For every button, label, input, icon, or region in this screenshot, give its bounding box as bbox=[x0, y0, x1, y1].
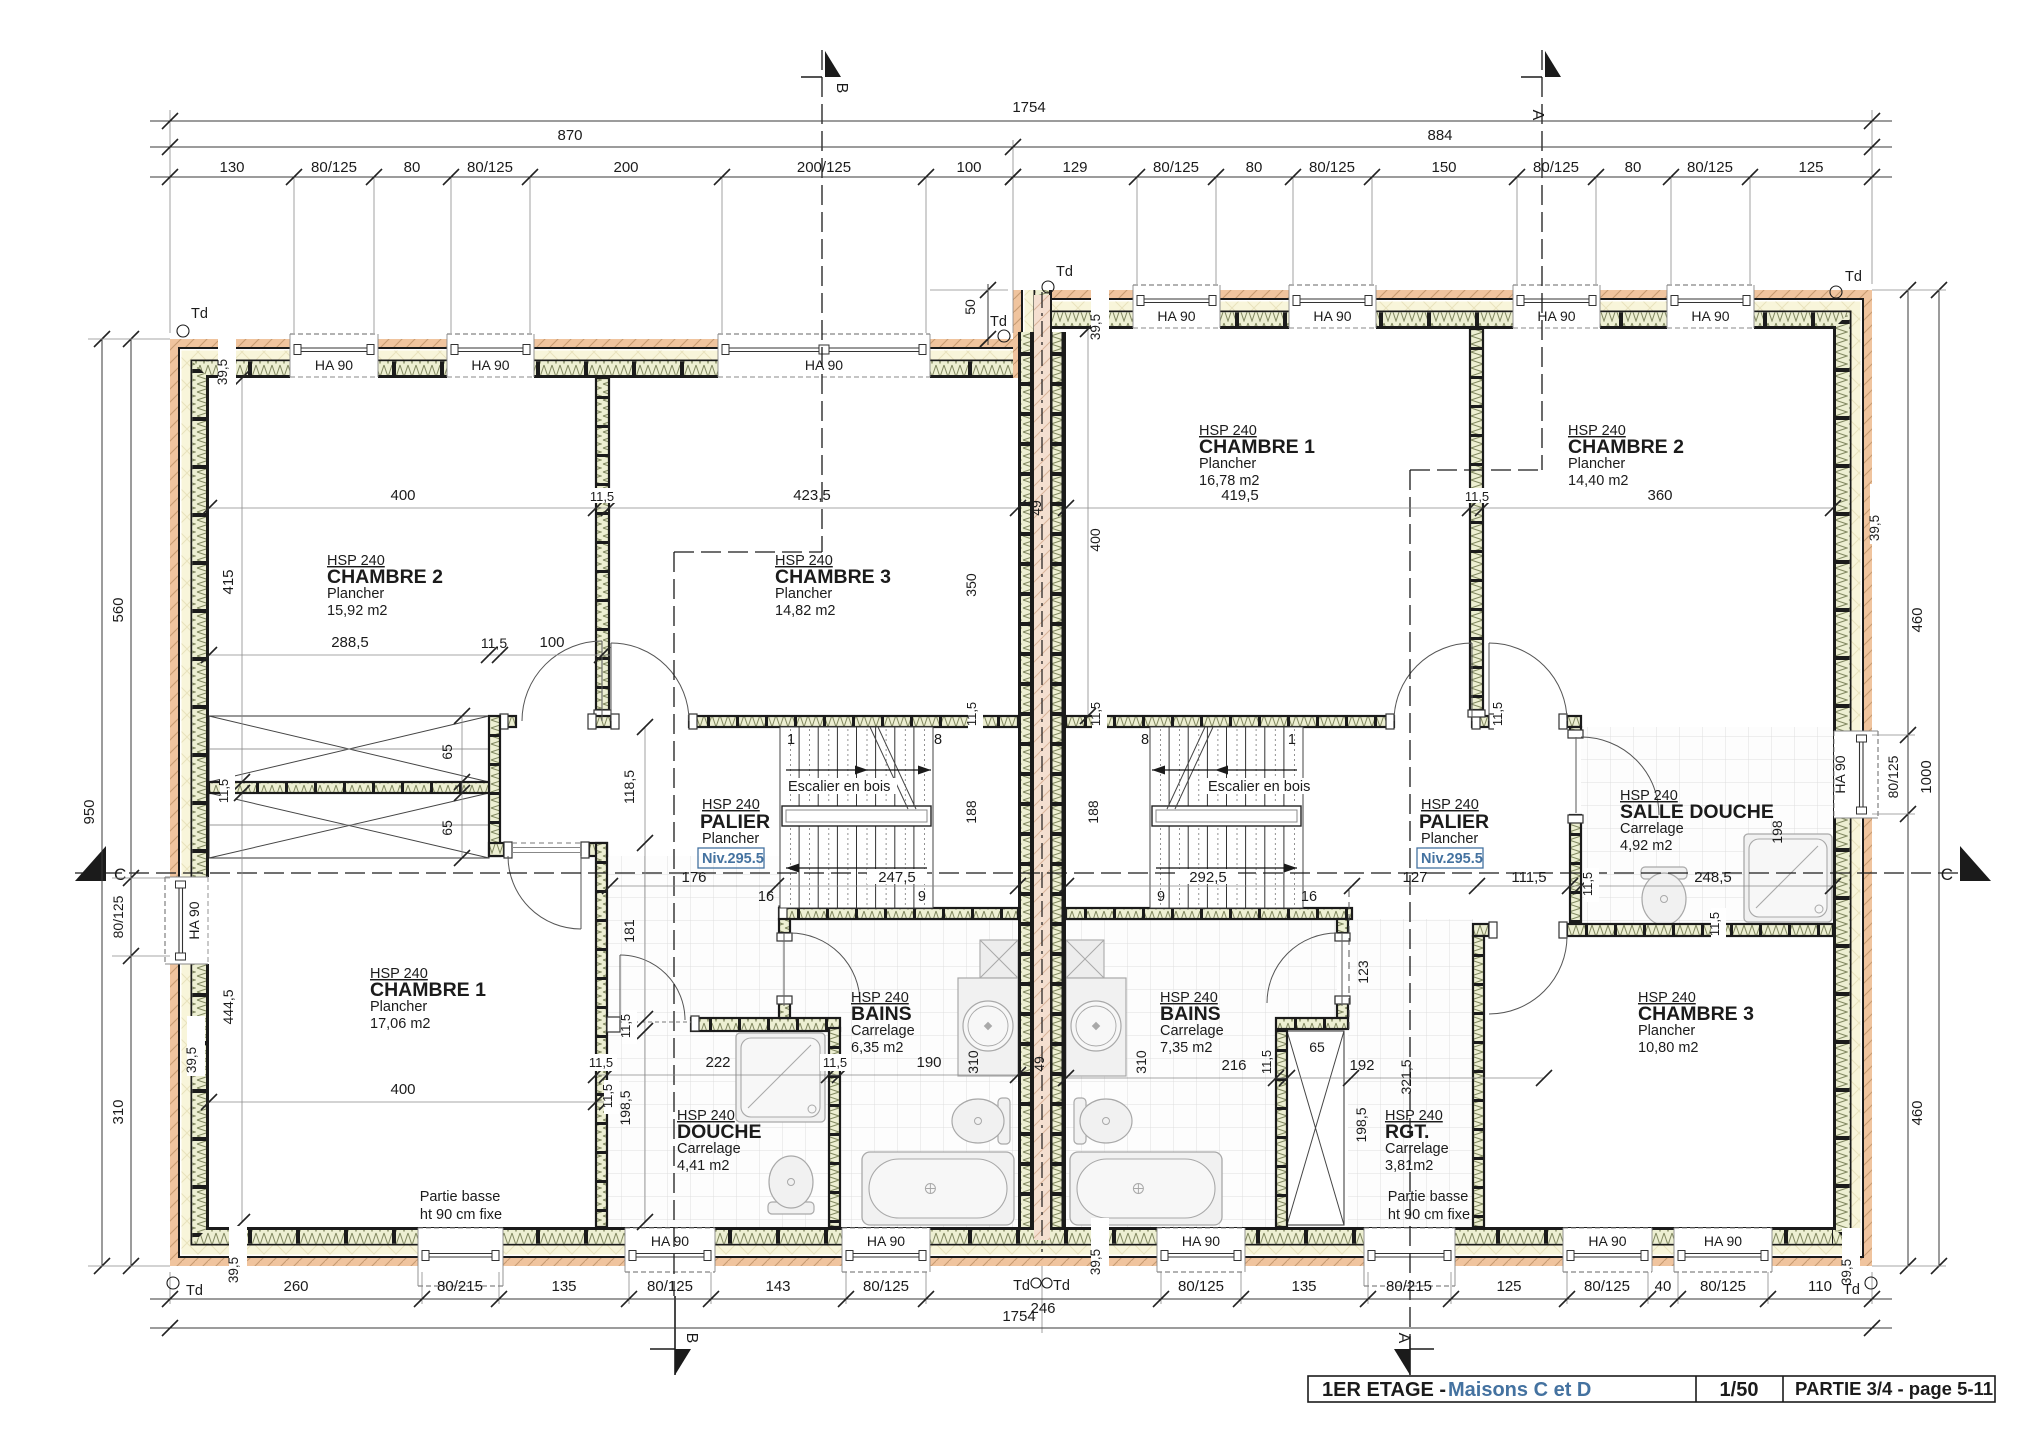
svg-text:Partie basse: Partie basse bbox=[1388, 1189, 1469, 1205]
svg-text:80: 80 bbox=[1625, 159, 1642, 176]
svg-text:Niv.295.5: Niv.295.5 bbox=[1421, 851, 1483, 867]
svg-text:4,41 m2: 4,41 m2 bbox=[677, 1158, 729, 1174]
svg-text:130: 130 bbox=[219, 159, 244, 176]
svg-text:11,5: 11,5 bbox=[964, 702, 979, 726]
svg-text:1: 1 bbox=[787, 732, 795, 748]
svg-text:BAINS: BAINS bbox=[851, 1003, 912, 1025]
svg-text:39,5: 39,5 bbox=[226, 1257, 241, 1283]
svg-text:360: 360 bbox=[1647, 487, 1672, 504]
svg-text:Carrelage: Carrelage bbox=[1385, 1141, 1449, 1157]
svg-text:310: 310 bbox=[965, 1050, 981, 1074]
svg-text:16: 16 bbox=[1301, 889, 1317, 905]
svg-text:80/125: 80/125 bbox=[1584, 1278, 1630, 1295]
svg-text:Td: Td bbox=[1845, 269, 1862, 285]
svg-text:111,5: 111,5 bbox=[1511, 869, 1546, 886]
svg-text:HA 90: HA 90 bbox=[1704, 1233, 1742, 1249]
svg-text:419,5: 419,5 bbox=[1221, 487, 1259, 504]
svg-text:65: 65 bbox=[1309, 1039, 1325, 1055]
svg-text:39,5: 39,5 bbox=[215, 359, 230, 385]
svg-text:1754: 1754 bbox=[1012, 99, 1045, 116]
svg-text:49: 49 bbox=[1031, 1056, 1047, 1072]
svg-text:80/125: 80/125 bbox=[1700, 1278, 1746, 1295]
svg-text:423,5: 423,5 bbox=[793, 487, 831, 504]
svg-text:HA 90: HA 90 bbox=[1313, 308, 1351, 324]
svg-text:6,35 m2: 6,35 m2 bbox=[851, 1040, 903, 1056]
svg-text:400: 400 bbox=[390, 487, 415, 504]
svg-text:11,5: 11,5 bbox=[216, 779, 231, 803]
svg-text:143: 143 bbox=[765, 1278, 790, 1295]
svg-text:11,5: 11,5 bbox=[823, 1055, 847, 1070]
svg-text:CHAMBRE 3: CHAMBRE 3 bbox=[1638, 1003, 1754, 1025]
svg-text:A: A bbox=[1395, 1333, 1412, 1344]
svg-text:11,5: 11,5 bbox=[589, 1055, 613, 1070]
svg-text:80/215: 80/215 bbox=[1386, 1278, 1432, 1295]
svg-text:HA 90: HA 90 bbox=[1832, 755, 1848, 793]
svg-text:118,5: 118,5 bbox=[621, 770, 637, 804]
svg-text:11,5: 11,5 bbox=[590, 489, 614, 504]
svg-text:870: 870 bbox=[557, 127, 582, 144]
svg-text:400: 400 bbox=[1087, 528, 1103, 552]
svg-text:1: 1 bbox=[1288, 732, 1296, 748]
svg-text:CHAMBRE 3: CHAMBRE 3 bbox=[775, 566, 891, 588]
svg-text:4,92 m2: 4,92 m2 bbox=[1620, 838, 1672, 854]
svg-text:SALLE DOUCHE: SALLE DOUCHE bbox=[1620, 801, 1774, 823]
svg-text:80/125: 80/125 bbox=[1885, 755, 1901, 798]
svg-text:176: 176 bbox=[681, 869, 706, 886]
svg-text:129: 129 bbox=[1062, 159, 1087, 176]
svg-text:198,5: 198,5 bbox=[1353, 1107, 1369, 1142]
svg-text:125: 125 bbox=[1496, 1278, 1521, 1295]
svg-text:321,5: 321,5 bbox=[1398, 1059, 1414, 1094]
svg-text:16,78 m2: 16,78 m2 bbox=[1199, 473, 1259, 489]
svg-text:1ER ETAGE -: 1ER ETAGE - bbox=[1322, 1379, 1446, 1401]
svg-text:200/125: 200/125 bbox=[797, 159, 851, 176]
svg-text:Carrelage: Carrelage bbox=[1620, 821, 1684, 837]
svg-text:Plancher: Plancher bbox=[1421, 831, 1478, 847]
svg-text:CHAMBRE 2: CHAMBRE 2 bbox=[1568, 436, 1684, 458]
svg-text:80/215: 80/215 bbox=[437, 1278, 483, 1295]
svg-text:216: 216 bbox=[1221, 1057, 1246, 1074]
svg-text:ht 90 cm fixe: ht 90 cm fixe bbox=[420, 1207, 502, 1223]
svg-text:11,5: 11,5 bbox=[600, 1084, 615, 1108]
svg-text:80: 80 bbox=[404, 159, 421, 176]
svg-text:8: 8 bbox=[934, 732, 942, 748]
svg-text:9: 9 bbox=[918, 889, 926, 905]
svg-text:49: 49 bbox=[1028, 500, 1044, 516]
svg-text:110: 110 bbox=[1808, 1278, 1832, 1295]
svg-text:65: 65 bbox=[439, 744, 455, 760]
svg-text:PARTIE 3/4 - page 5-11: PARTIE 3/4 - page 5-11 bbox=[1795, 1378, 1993, 1399]
svg-text:135: 135 bbox=[551, 1278, 576, 1295]
svg-text:460: 460 bbox=[1909, 1100, 1926, 1125]
svg-text:125: 125 bbox=[1798, 159, 1823, 176]
svg-text:65: 65 bbox=[439, 820, 455, 836]
svg-text:Td: Td bbox=[1013, 1278, 1030, 1294]
svg-text:11,5: 11,5 bbox=[1707, 912, 1722, 936]
svg-text:Td: Td bbox=[990, 314, 1007, 330]
svg-text:DOUCHE: DOUCHE bbox=[677, 1121, 762, 1143]
svg-text:11,5: 11,5 bbox=[618, 1014, 633, 1038]
svg-text:884: 884 bbox=[1427, 127, 1452, 144]
svg-text:PALIER: PALIER bbox=[1419, 811, 1489, 833]
svg-text:ht 90 cm fixe: ht 90 cm fixe bbox=[1388, 1207, 1470, 1223]
svg-text:CHAMBRE 2: CHAMBRE 2 bbox=[327, 566, 443, 588]
svg-text:310: 310 bbox=[110, 1099, 127, 1124]
svg-text:1000: 1000 bbox=[1918, 760, 1935, 793]
svg-text:Td: Td bbox=[1053, 1278, 1070, 1294]
svg-text:Td: Td bbox=[186, 1283, 203, 1299]
svg-text:248,5: 248,5 bbox=[1694, 869, 1732, 886]
svg-text:Maisons C et D: Maisons C et D bbox=[1448, 1379, 1591, 1401]
svg-text:CHAMBRE 1: CHAMBRE 1 bbox=[370, 979, 486, 1001]
svg-text:14,82 m2: 14,82 m2 bbox=[775, 603, 835, 619]
svg-text:Td: Td bbox=[191, 306, 208, 322]
svg-text:Carrelage: Carrelage bbox=[677, 1141, 741, 1157]
svg-text:135: 135 bbox=[1291, 1278, 1316, 1295]
svg-text:A: A bbox=[1529, 110, 1546, 121]
svg-text:10,80 m2: 10,80 m2 bbox=[1638, 1040, 1698, 1056]
svg-text:80/125: 80/125 bbox=[1153, 159, 1199, 176]
svg-text:444,5: 444,5 bbox=[220, 989, 236, 1024]
svg-text:310: 310 bbox=[1133, 1050, 1149, 1074]
svg-text:39,5: 39,5 bbox=[1088, 314, 1103, 340]
svg-text:1/50: 1/50 bbox=[1720, 1379, 1759, 1401]
svg-text:HA 90: HA 90 bbox=[1537, 308, 1575, 324]
svg-text:14,40 m2: 14,40 m2 bbox=[1568, 473, 1628, 489]
svg-text:C: C bbox=[114, 865, 126, 884]
svg-text:Plancher: Plancher bbox=[702, 831, 759, 847]
svg-text:192: 192 bbox=[1349, 1057, 1374, 1074]
svg-text:39,5: 39,5 bbox=[1867, 515, 1882, 541]
svg-text:127: 127 bbox=[1402, 869, 1427, 886]
svg-text:Partie basse: Partie basse bbox=[420, 1189, 501, 1205]
svg-text:415: 415 bbox=[220, 569, 237, 594]
svg-text:460: 460 bbox=[1909, 607, 1926, 632]
svg-text:11,5: 11,5 bbox=[1490, 702, 1505, 726]
svg-text:247,5: 247,5 bbox=[878, 869, 916, 886]
svg-text:RGT.: RGT. bbox=[1385, 1121, 1429, 1143]
svg-text:11,5: 11,5 bbox=[481, 635, 507, 651]
svg-text:260: 260 bbox=[283, 1278, 308, 1295]
svg-text:Plancher: Plancher bbox=[1199, 456, 1256, 472]
svg-text:1754: 1754 bbox=[1002, 1308, 1035, 1325]
svg-text:B: B bbox=[683, 1333, 700, 1344]
svg-text:Carrelage: Carrelage bbox=[1160, 1023, 1224, 1039]
svg-text:80/125: 80/125 bbox=[1687, 159, 1733, 176]
svg-text:BAINS: BAINS bbox=[1160, 1003, 1221, 1025]
svg-text:200: 200 bbox=[613, 159, 638, 176]
svg-text:80/125: 80/125 bbox=[1533, 159, 1579, 176]
svg-text:8: 8 bbox=[1141, 732, 1149, 748]
svg-text:HA 90: HA 90 bbox=[471, 357, 509, 373]
svg-text:HA 90: HA 90 bbox=[651, 1233, 689, 1249]
svg-text:198,5: 198,5 bbox=[617, 1090, 633, 1125]
svg-text:190: 190 bbox=[916, 1054, 941, 1071]
svg-text:80/125: 80/125 bbox=[863, 1278, 909, 1295]
svg-text:HA 90: HA 90 bbox=[1157, 308, 1195, 324]
svg-text:Plancher: Plancher bbox=[1638, 1023, 1695, 1039]
svg-text:11,5: 11,5 bbox=[1259, 1050, 1274, 1074]
svg-text:80/125: 80/125 bbox=[110, 895, 126, 938]
svg-text:39,5: 39,5 bbox=[184, 1047, 199, 1073]
svg-text:80/125: 80/125 bbox=[1309, 159, 1355, 176]
svg-text:400: 400 bbox=[390, 1081, 415, 1098]
svg-text:181: 181 bbox=[621, 919, 637, 943]
svg-text:292,5: 292,5 bbox=[1189, 869, 1227, 886]
svg-text:123: 123 bbox=[1355, 960, 1371, 984]
svg-text:198: 198 bbox=[1769, 820, 1785, 844]
svg-text:11,5: 11,5 bbox=[1465, 489, 1489, 504]
svg-text:80/125: 80/125 bbox=[467, 159, 513, 176]
svg-text:Td: Td bbox=[1843, 1282, 1860, 1298]
svg-text:100: 100 bbox=[956, 159, 981, 176]
svg-text:350: 350 bbox=[963, 573, 979, 597]
svg-text:288,5: 288,5 bbox=[331, 634, 369, 651]
svg-text:80/125: 80/125 bbox=[311, 159, 357, 176]
svg-text:80: 80 bbox=[1246, 159, 1263, 176]
svg-text:HA 90: HA 90 bbox=[186, 901, 202, 939]
svg-text:HA 90: HA 90 bbox=[805, 357, 843, 373]
svg-text:HA 90: HA 90 bbox=[1182, 1233, 1220, 1249]
svg-text:222: 222 bbox=[705, 1054, 730, 1071]
svg-text:100: 100 bbox=[539, 634, 564, 651]
svg-text:9: 9 bbox=[1157, 889, 1165, 905]
svg-text:Plancher: Plancher bbox=[775, 586, 832, 602]
svg-text:80/125: 80/125 bbox=[1178, 1278, 1224, 1295]
svg-text:PALIER: PALIER bbox=[700, 811, 770, 833]
svg-text:188: 188 bbox=[963, 800, 979, 824]
svg-text:Niv.295.5: Niv.295.5 bbox=[702, 851, 764, 867]
svg-text:Carrelage: Carrelage bbox=[851, 1023, 915, 1039]
svg-text:11,5: 11,5 bbox=[1580, 872, 1595, 896]
svg-text:15,92 m2: 15,92 m2 bbox=[327, 603, 387, 619]
svg-text:80/125: 80/125 bbox=[647, 1278, 693, 1295]
svg-text:Plancher: Plancher bbox=[1568, 456, 1625, 472]
svg-text:Plancher: Plancher bbox=[327, 586, 384, 602]
svg-text:Escalier en bois: Escalier en bois bbox=[1208, 779, 1310, 795]
svg-text:3,81m2: 3,81m2 bbox=[1385, 1158, 1433, 1174]
svg-text:560: 560 bbox=[110, 597, 127, 622]
svg-text:CHAMBRE 1: CHAMBRE 1 bbox=[1199, 436, 1315, 458]
svg-text:40: 40 bbox=[1655, 1278, 1672, 1295]
svg-text:B: B bbox=[833, 83, 850, 94]
svg-text:HA 90: HA 90 bbox=[1588, 1233, 1626, 1249]
svg-text:17,06 m2: 17,06 m2 bbox=[370, 1016, 430, 1032]
svg-text:7,35 m2: 7,35 m2 bbox=[1160, 1040, 1212, 1056]
svg-text:HA 90: HA 90 bbox=[867, 1233, 905, 1249]
svg-text:Plancher: Plancher bbox=[370, 999, 427, 1015]
svg-text:950: 950 bbox=[81, 799, 98, 824]
svg-text:188: 188 bbox=[1085, 800, 1101, 824]
svg-text:Td: Td bbox=[1056, 264, 1073, 280]
svg-text:50: 50 bbox=[962, 299, 978, 315]
svg-text:Escalier en bois: Escalier en bois bbox=[788, 779, 890, 795]
svg-text:HA 90: HA 90 bbox=[1691, 308, 1729, 324]
svg-text:HA 90: HA 90 bbox=[315, 357, 353, 373]
svg-text:C: C bbox=[1941, 865, 1953, 884]
svg-text:150: 150 bbox=[1431, 159, 1456, 176]
svg-text:39,5: 39,5 bbox=[1088, 1249, 1103, 1275]
